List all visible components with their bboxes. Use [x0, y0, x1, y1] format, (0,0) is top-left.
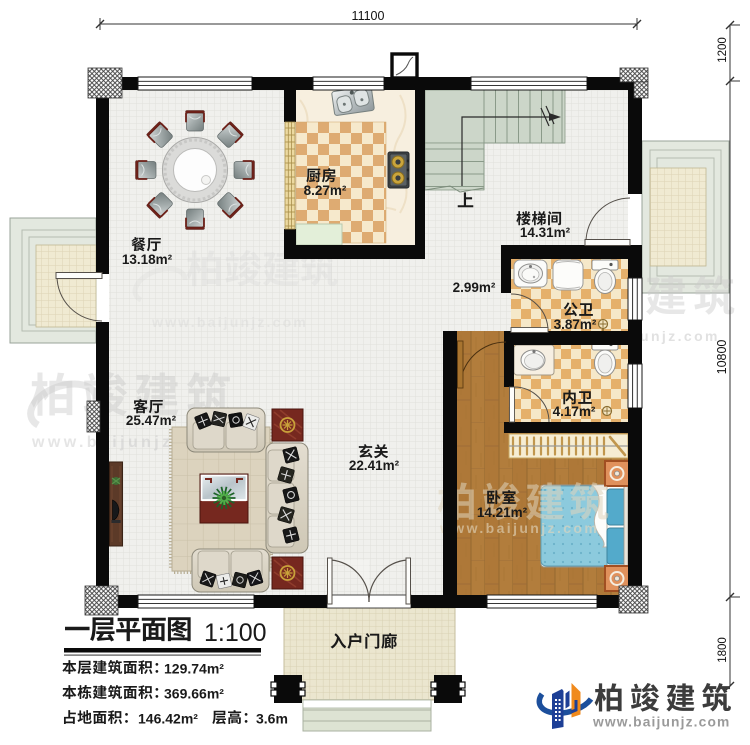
svg-text:11100: 11100 [352, 9, 385, 23]
svg-text:www.baijunjz.com: www.baijunjz.com [592, 715, 730, 730]
svg-text:1800: 1800 [717, 637, 729, 663]
svg-text:unjz.com: unjz.com [640, 328, 720, 344]
svg-text:2.99m²: 2.99m² [453, 280, 496, 295]
svg-text:10800: 10800 [715, 340, 729, 375]
svg-text:4.17m²: 4.17m² [553, 404, 596, 419]
svg-text:369.66m²: 369.66m² [164, 686, 224, 702]
svg-text:www.baijunjz.com: www.baijunjz.com [151, 314, 308, 330]
svg-text:129.74m²: 129.74m² [164, 661, 224, 677]
svg-text:146.42m²: 146.42m² [138, 711, 198, 727]
svg-text:8.27m²: 8.27m² [304, 183, 347, 198]
svg-text:3.87m²: 3.87m² [554, 317, 597, 332]
svg-text:13.18m²: 13.18m² [122, 252, 173, 267]
svg-text:1200: 1200 [717, 37, 729, 63]
svg-text:22.41m²: 22.41m² [349, 458, 400, 473]
svg-text:14.31m²: 14.31m² [520, 225, 571, 240]
svg-text:3.6m: 3.6m [256, 711, 288, 727]
svg-text:www.baijunjz.com: www.baijunjz.com [439, 520, 599, 536]
svg-text:25.47m²: 25.47m² [126, 413, 177, 428]
svg-text:1:100: 1:100 [204, 619, 267, 647]
svg-text:14.21m²: 14.21m² [477, 505, 528, 520]
